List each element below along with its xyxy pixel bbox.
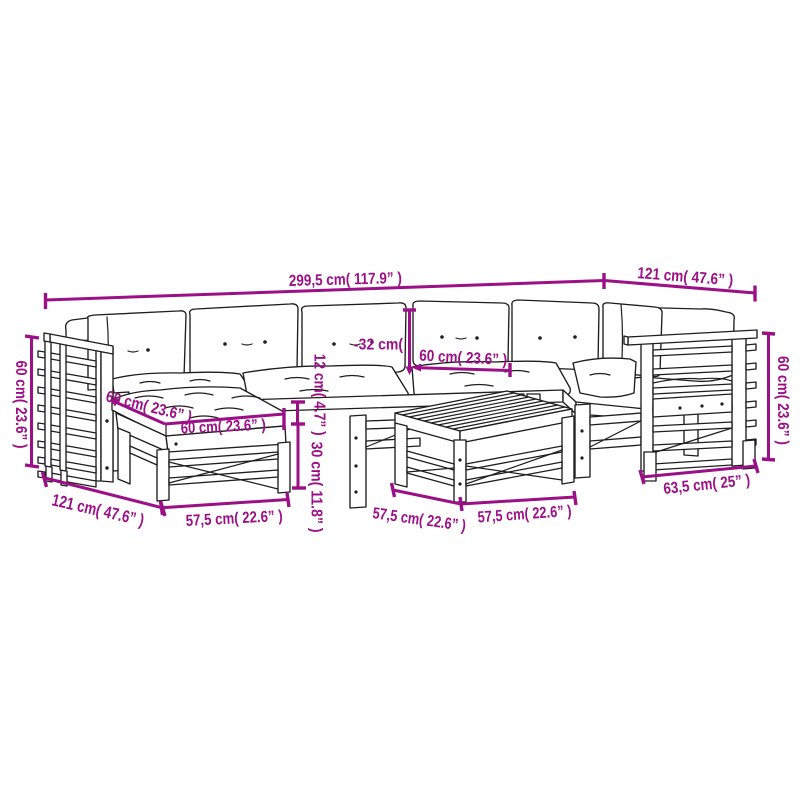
svg-text:-32 cm(: -32 cm( xyxy=(354,337,404,354)
svg-text:60 cm( 23.6” ): 60 cm( 23.6” ) xyxy=(12,361,29,449)
svg-text:299,5 cm( 117.9” ): 299,5 cm( 117.9” ) xyxy=(289,270,402,290)
svg-text:30 cm( 11.8” ): 30 cm( 11.8” ) xyxy=(308,442,325,533)
svg-text:12 cm( 4.7” ): 12 cm( 4.7” ) xyxy=(311,354,328,436)
svg-text:60 cm( 23.6” ): 60 cm( 23.6” ) xyxy=(774,356,791,445)
